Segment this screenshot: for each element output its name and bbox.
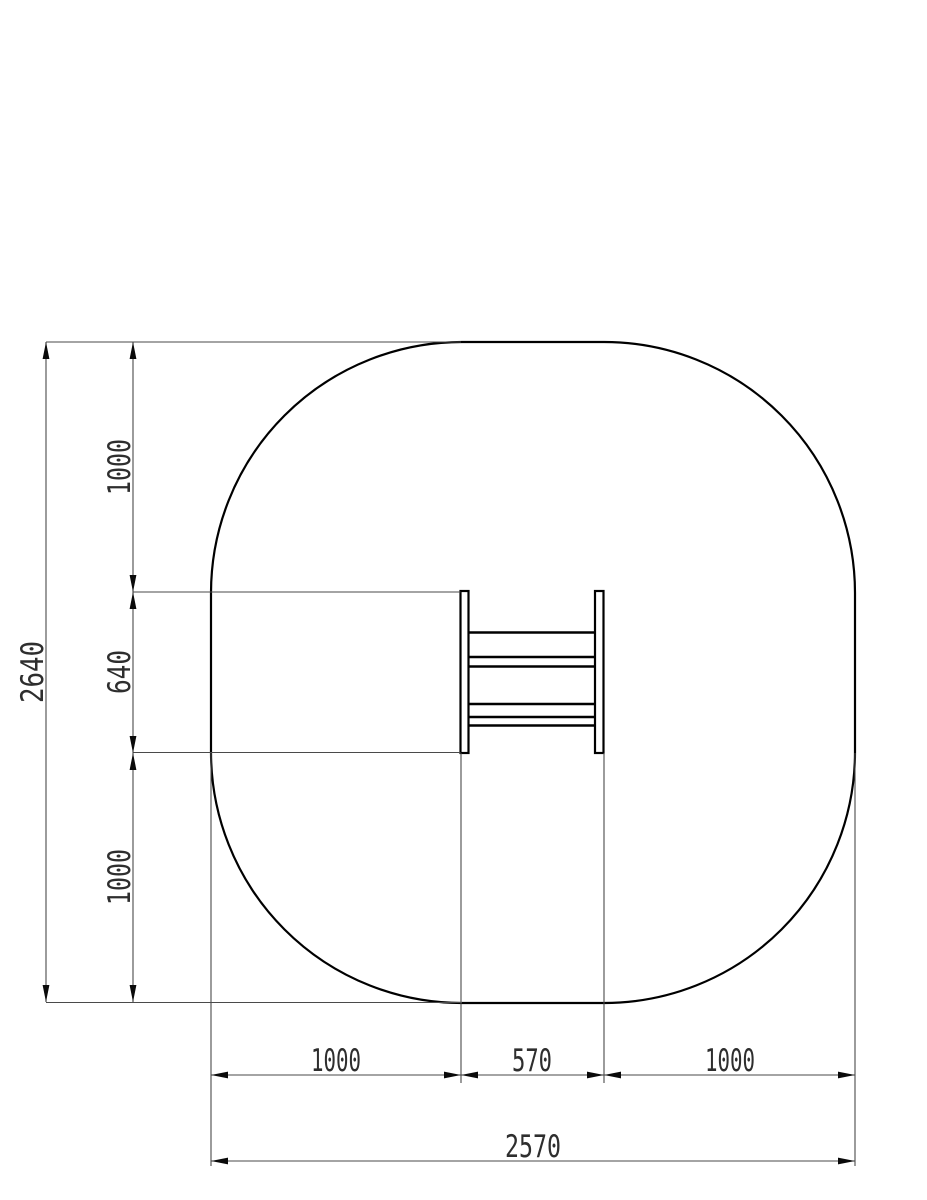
technical-drawing-page: 2640 1000 640 1000 1000 570 1000 2570 [0,0,927,1200]
dim-arrow-left [211,1158,228,1165]
dim-label-overall-width: 2570 [505,1129,561,1165]
dim-label-equipment-width: 570 [512,1043,552,1079]
dim-arrow-left [604,1072,621,1079]
dim-label-clearance-bottom: 1000 [102,849,138,905]
dim-arrow-up [130,753,137,770]
dim-label-clearance-right: 1000 [705,1043,755,1079]
dimension-arrows [43,342,855,1164]
dim-arrow-right [444,1072,461,1079]
technical-drawing-canvas: 2640 1000 640 1000 1000 570 1000 2570 [0,0,927,1200]
dim-arrow-down [130,736,137,753]
safety-zone-outline [211,342,855,1003]
equipment-left-rail [461,591,469,753]
dim-arrow-down [130,575,137,592]
dim-arrow-up [43,342,50,359]
dim-arrow-up [130,342,137,359]
dim-arrow-right [838,1072,855,1079]
dim-label-clearance-top: 1000 [102,439,138,495]
dim-arrow-down [43,985,50,1002]
dim-arrow-up [130,592,137,609]
dim-label-clearance-left: 1000 [311,1043,361,1079]
dim-label-overall-height: 2640 [15,641,51,703]
dim-label-equipment-depth: 640 [102,650,138,694]
dim-arrow-down [130,985,137,1002]
dimension-lines [46,342,855,1161]
dim-arrow-right [587,1072,604,1079]
dim-arrow-left [211,1072,228,1079]
drawing-objects [211,342,855,1003]
dim-arrow-left [461,1072,478,1079]
equipment-right-rail [595,591,604,753]
dim-arrow-right [838,1158,855,1165]
dimension-labels: 2640 1000 640 1000 1000 570 1000 2570 [15,439,755,1165]
